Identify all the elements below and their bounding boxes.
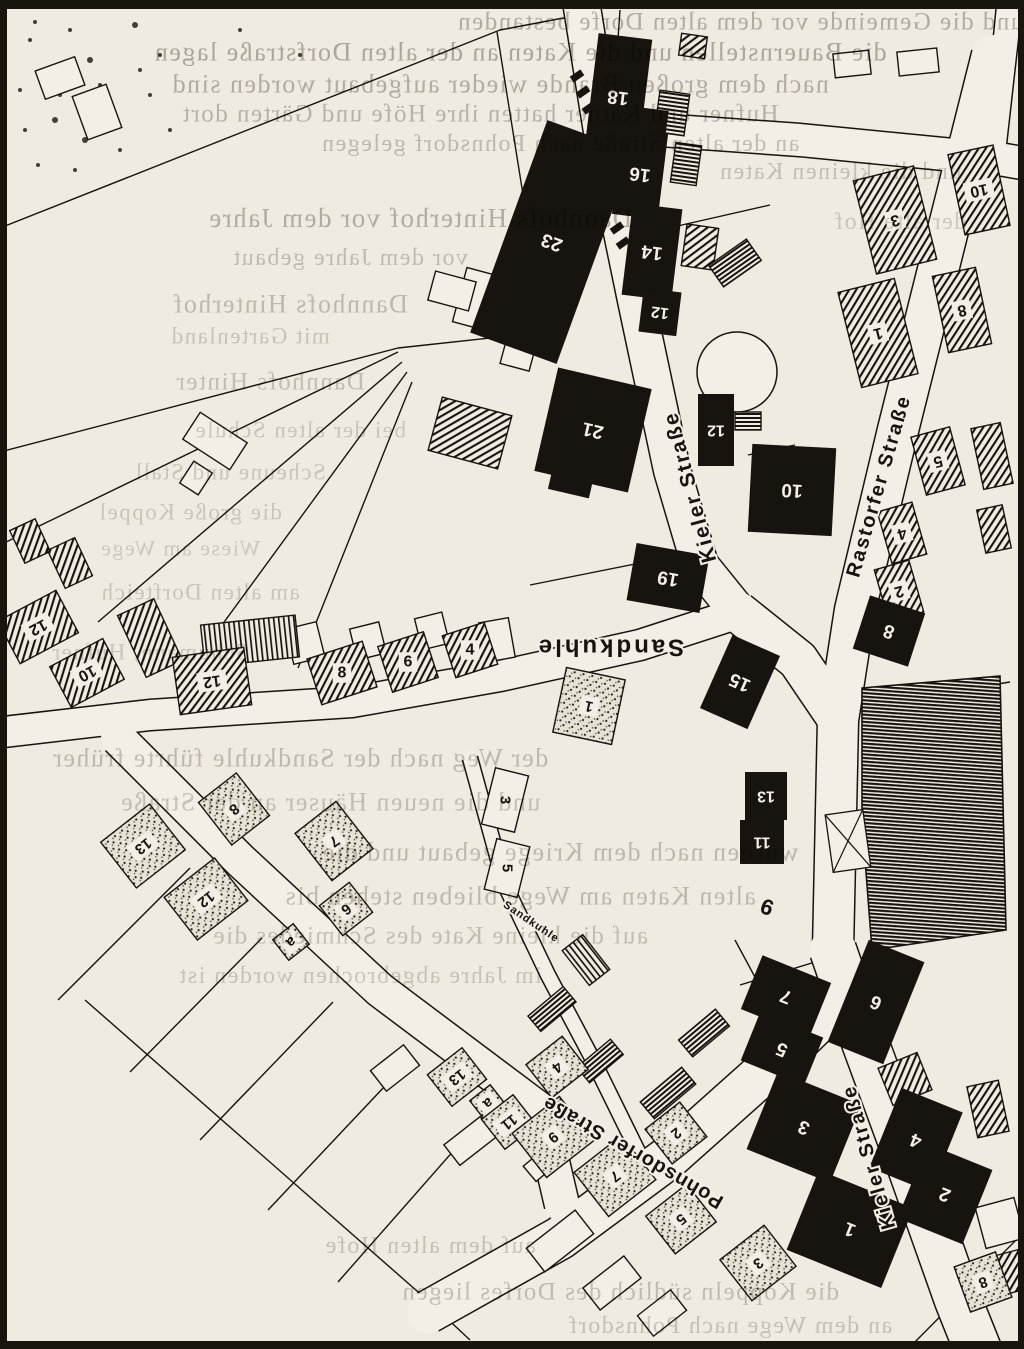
town-map-svg: 3110854212101286411312876a13a11492753835… xyxy=(0,0,1024,1349)
building-black-13: 13 xyxy=(745,772,787,820)
ghost-text-line: die große Koppel xyxy=(98,500,282,525)
svg-text:16: 16 xyxy=(628,162,652,185)
ghost-text-line: Scheune und Stall xyxy=(134,460,326,485)
svg-text:12: 12 xyxy=(707,422,725,439)
street-label-sandkuhle-large: Sandkuhle xyxy=(536,634,684,661)
ghost-text-line: am alten Dorfteich xyxy=(100,580,299,605)
building-black-annex xyxy=(714,409,732,423)
ghost-text-line: an dem Wege nach Pohnsdorf xyxy=(568,1313,893,1339)
ghost-text-line: auf dem alten Hofe xyxy=(324,1233,536,1259)
ghost-text-line: Dannhofs Hinterhof xyxy=(172,290,408,319)
ghost-text-line: der Weg nach der Sandkuhle führte früher xyxy=(52,744,548,773)
building-black-12: 12 xyxy=(698,394,734,466)
ghost-text-line: die Bauernstellen und die Katen an der a… xyxy=(153,38,886,67)
svg-text:8: 8 xyxy=(338,665,347,682)
ghost-text-line: vor dem Jahre gebaut xyxy=(232,245,468,271)
svg-text:4: 4 xyxy=(466,642,475,659)
ghost-text-line: und die Gemeinde vor dem alten Dorfe bes… xyxy=(457,9,1024,36)
ghost-text-line: Schumann, Hufner xyxy=(51,640,249,665)
building-pattern xyxy=(735,412,761,430)
svg-text:12: 12 xyxy=(650,302,670,321)
svg-text:10: 10 xyxy=(968,180,989,200)
ghost-text-line: die Koppeln südlich des Dorfes liegen xyxy=(401,1279,839,1306)
complex-annex-x xyxy=(825,810,871,873)
ghost-text-line: Dannhofs Hinter xyxy=(175,369,365,396)
large-farm-complex xyxy=(862,676,1006,950)
building-black-12: 12 xyxy=(638,288,681,336)
ghost-text-line: nach dem großen Brande wieder aufgebaut … xyxy=(171,70,829,99)
building-black-10: 10 xyxy=(748,444,836,536)
ghost-text-line: und die kleinen Katen xyxy=(719,159,962,185)
ghost-text-line: Wiese am Wege xyxy=(100,536,261,561)
ghost-text-line: bei der alten Schule xyxy=(194,418,406,443)
svg-text:12: 12 xyxy=(202,671,222,690)
ghost-text-line: wurden nach dem Kriege gebaut und die xyxy=(321,838,798,867)
svg-text:13: 13 xyxy=(757,788,775,805)
ghost-text-line: der alte Hof xyxy=(834,209,967,235)
building-stippled-1: 1 xyxy=(553,667,625,744)
ghost-text-line: im Jahre abgebrochen worden ist xyxy=(178,963,542,989)
svg-text:6: 6 xyxy=(404,654,413,671)
town-map-scan-page: 3110854212101286411312876a13a11492753835… xyxy=(0,0,1024,1349)
ghost-text-line: mit Gartenland xyxy=(170,324,330,349)
svg-text:10: 10 xyxy=(781,479,803,501)
svg-text:14: 14 xyxy=(640,240,664,263)
building-plain xyxy=(897,48,939,76)
svg-text:19: 19 xyxy=(656,566,680,590)
ghost-text-line: alten Katen am Wege blieben stehen bis xyxy=(284,882,756,911)
ghost-text-line: auf die kleine Kate des Schmiedes die xyxy=(212,923,648,950)
ghost-text-line: und die neuen Häuser an der Straße xyxy=(120,788,541,817)
ghost-text-line: an der alten Straße nach Pohnsdorf geleg… xyxy=(321,131,800,157)
ghost-text-line: Dannhofs Hinterhof vor dem Jahre xyxy=(208,203,632,233)
ghost-text-line: Hufner und Kätner hatten ihre Höfe und G… xyxy=(181,101,778,128)
